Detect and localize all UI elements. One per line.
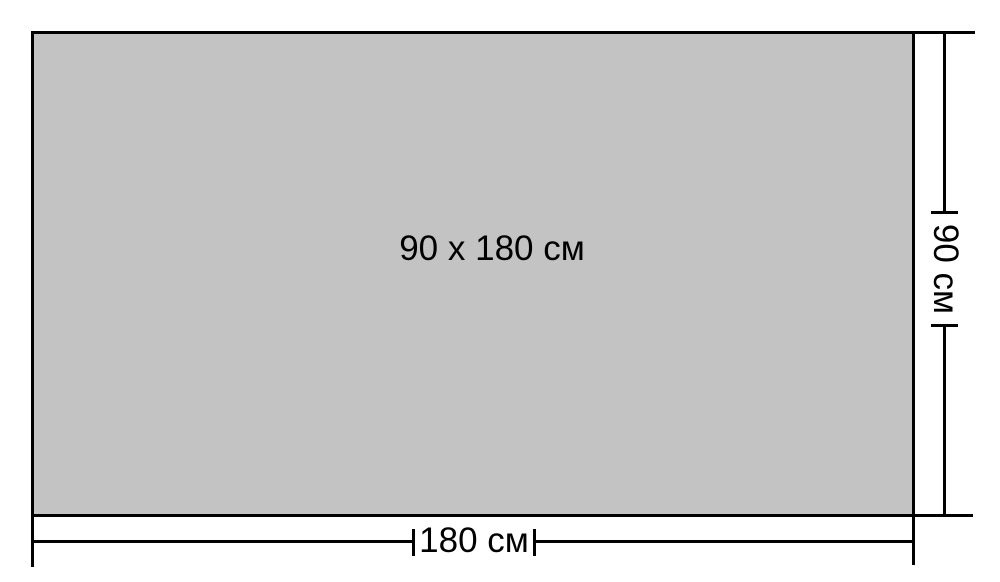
width-dimension-line-right-segment (536, 540, 915, 543)
width-dimension-tick-left (412, 529, 415, 556)
width-dimension-line-left-segment (31, 540, 412, 543)
height-dimension-line-bottom-segment (943, 326, 946, 517)
height-dimension-label: 90 см (925, 224, 965, 314)
height-dimension-line-top-segment (943, 31, 946, 212)
panel-size-label: 90 x 180 см (399, 229, 585, 269)
width-dimension-label: 180 см (419, 521, 529, 561)
dimension-diagram: 90 x 180 см 180 см 90 см (0, 0, 1000, 582)
height-dimension-tick-bottom (931, 324, 958, 327)
panel-rectangle (31, 31, 915, 517)
width-dimension-tick-right (533, 529, 536, 556)
height-dimension-tick-top (931, 211, 958, 214)
